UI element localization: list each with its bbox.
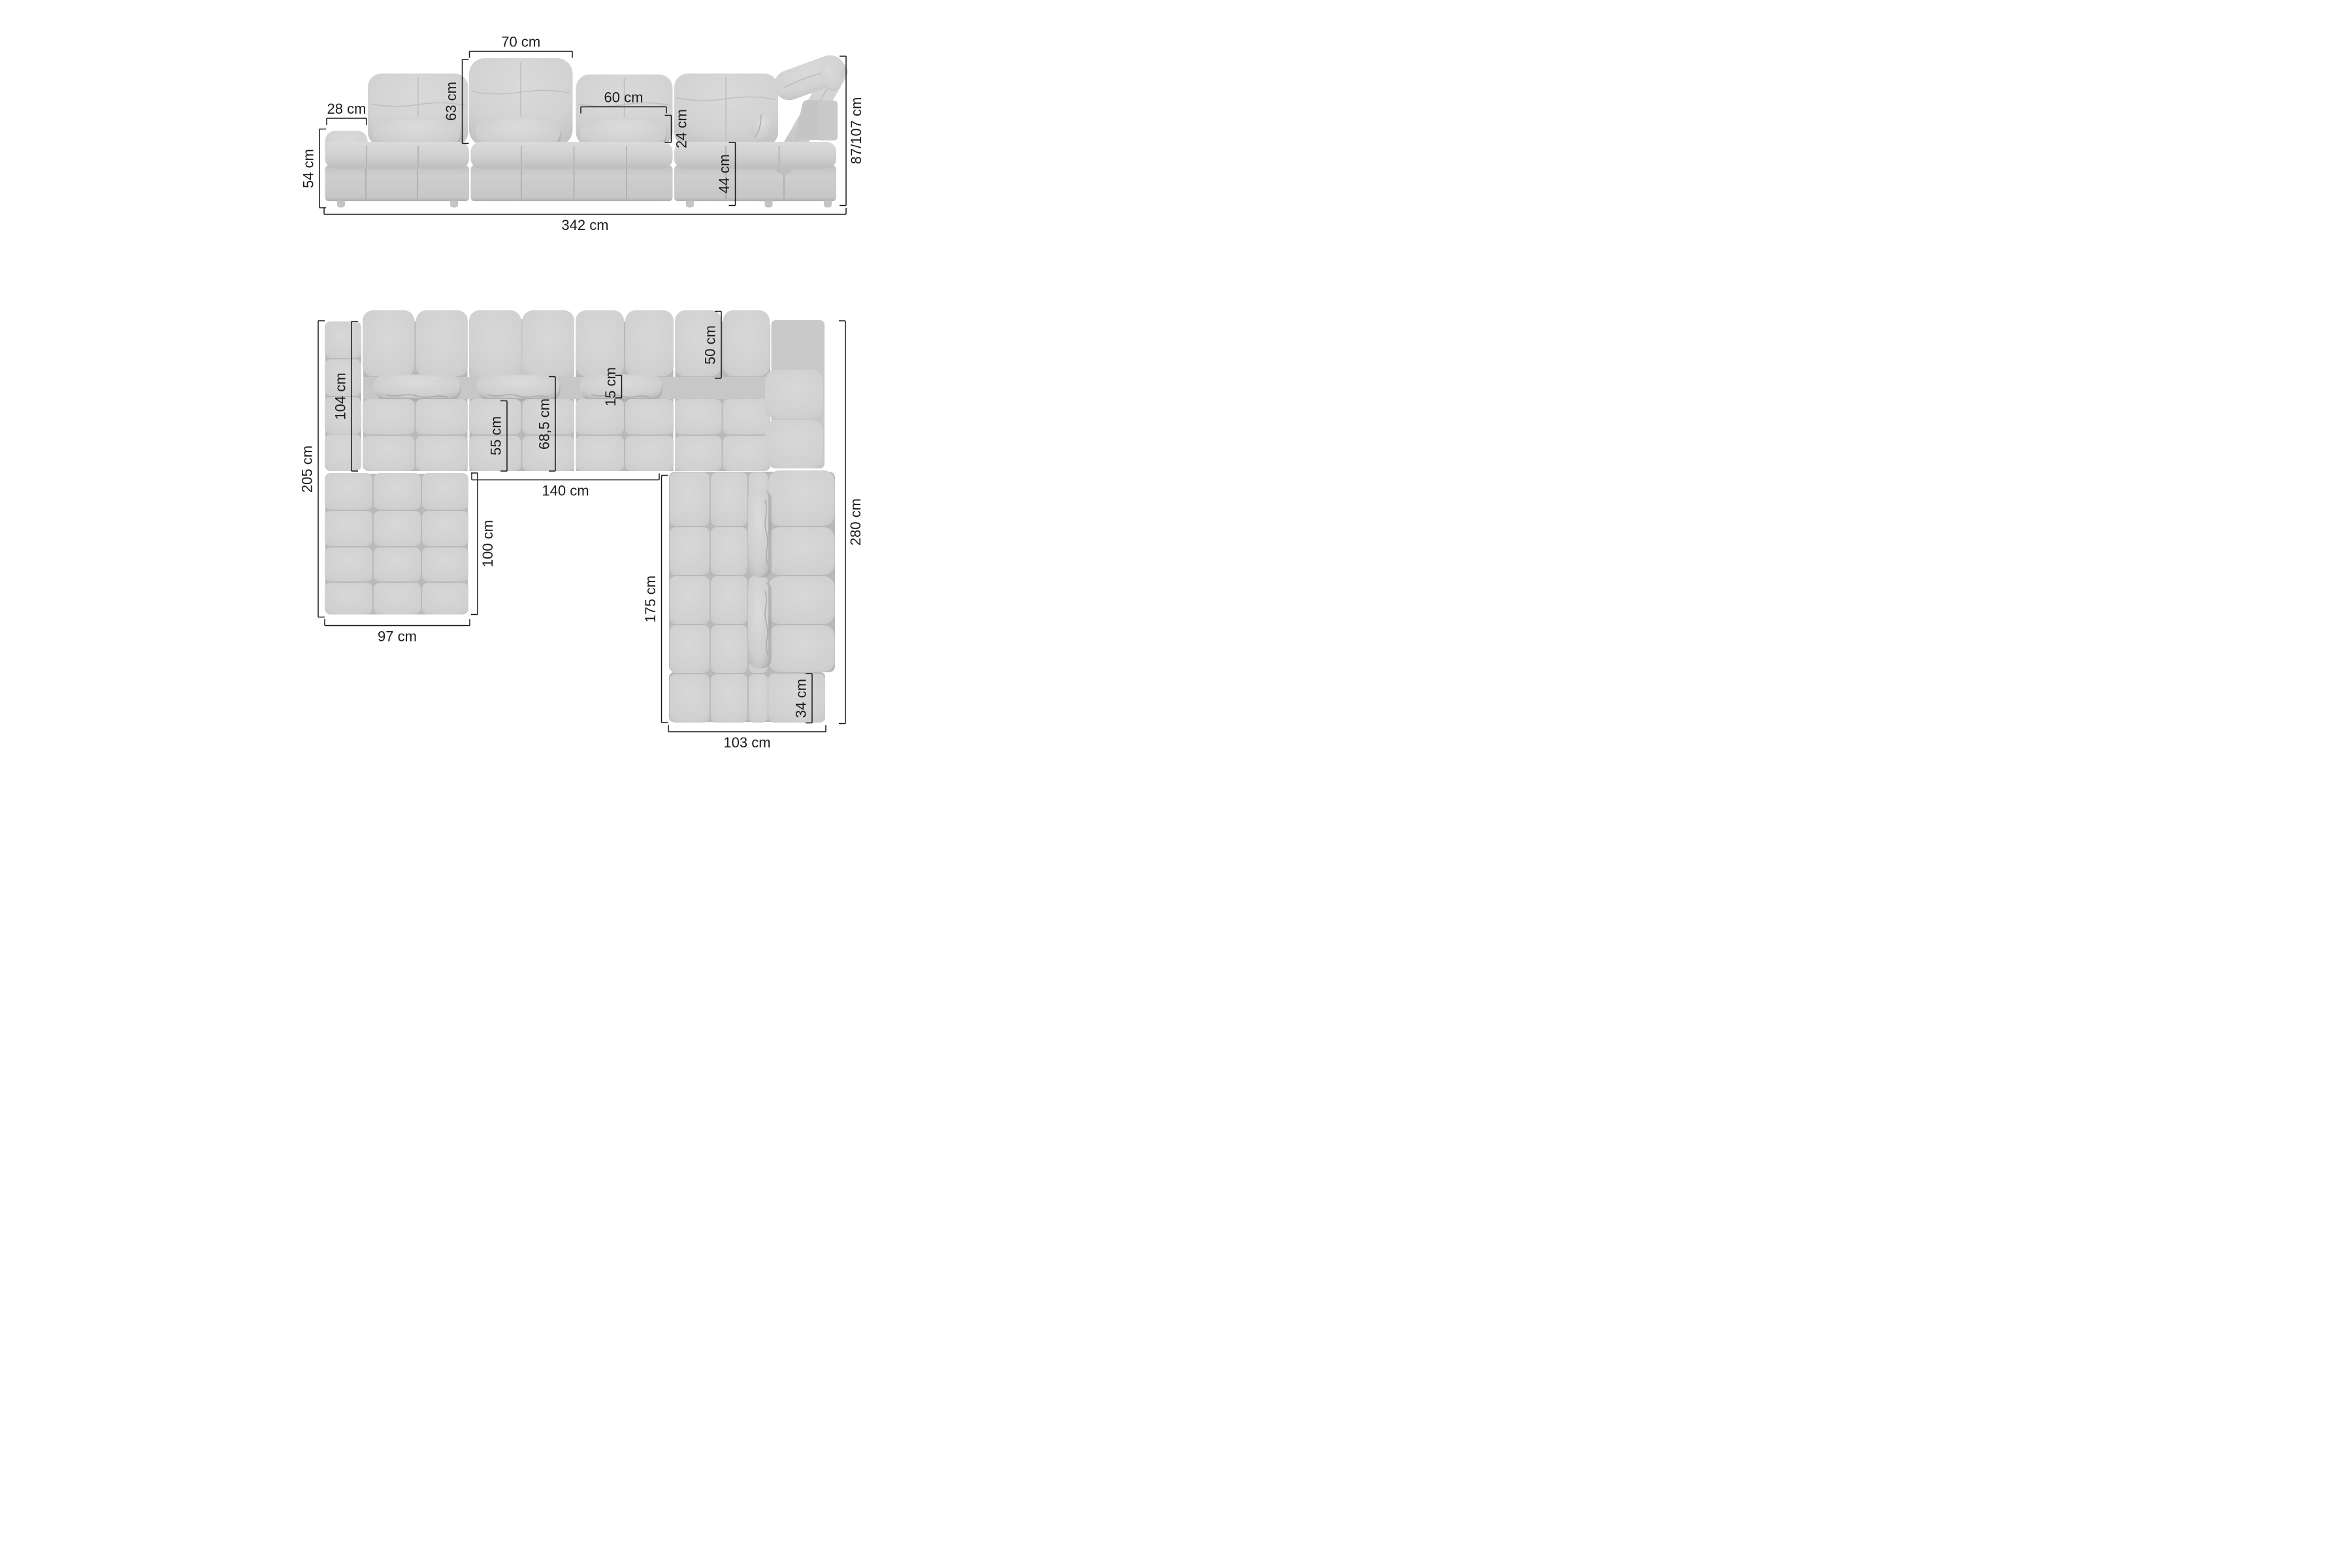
svg-text:87/107 cm: 87/107 cm xyxy=(848,97,864,165)
svg-text:24 cm: 24 cm xyxy=(674,109,690,148)
svg-text:280 cm: 280 cm xyxy=(847,498,864,546)
svg-text:103 cm: 103 cm xyxy=(723,734,770,751)
svg-text:28 cm: 28 cm xyxy=(327,101,367,117)
svg-text:342 cm: 342 cm xyxy=(561,217,608,233)
svg-text:175 cm: 175 cm xyxy=(642,576,659,623)
svg-text:50 cm: 50 cm xyxy=(702,325,719,365)
svg-text:55 cm: 55 cm xyxy=(488,416,504,455)
svg-text:63 cm: 63 cm xyxy=(443,82,459,121)
svg-text:140 cm: 140 cm xyxy=(542,483,589,499)
svg-text:54 cm: 54 cm xyxy=(301,149,317,188)
svg-text:104 cm: 104 cm xyxy=(333,372,349,419)
svg-text:68,5 cm: 68,5 cm xyxy=(536,399,553,449)
svg-text:60 cm: 60 cm xyxy=(604,90,644,106)
svg-text:97 cm: 97 cm xyxy=(378,629,417,645)
svg-text:34 cm: 34 cm xyxy=(793,679,809,718)
svg-text:70 cm: 70 cm xyxy=(501,34,540,50)
svg-text:15 cm: 15 cm xyxy=(602,367,619,406)
svg-text:205 cm: 205 cm xyxy=(299,446,316,493)
svg-text:44 cm: 44 cm xyxy=(716,154,732,193)
svg-text:100 cm: 100 cm xyxy=(480,520,496,567)
